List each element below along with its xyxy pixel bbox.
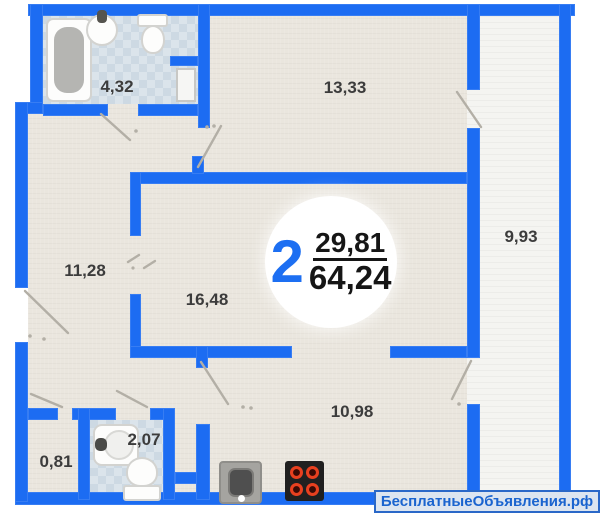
room-area-label-balcony: 9,93 [504, 227, 537, 247]
room-area-label-closet: 0,81 [39, 452, 72, 472]
wall [163, 408, 175, 500]
wall [192, 156, 204, 174]
kitchen-sink-drain [238, 495, 245, 502]
wc-sink-faucet [95, 438, 107, 451]
area-badge: 2 29,81 64,24 [265, 196, 397, 328]
stove-icon [285, 461, 324, 501]
vent-shaft [176, 68, 196, 102]
room-area-label-hall: 11,28 [64, 261, 106, 281]
wall [198, 4, 210, 128]
stove-burner-icon [306, 466, 319, 479]
total-area-value: 64,24 [309, 261, 392, 296]
wall [43, 104, 108, 116]
bath-toilet-bowl [141, 25, 165, 54]
wc-toilet-tank [123, 485, 161, 501]
floor-plan: 4,32 13,33 9,93 11,28 16,48 10,98 0,81 2… [0, 0, 600, 516]
wall [175, 472, 197, 484]
wall [467, 4, 480, 90]
wall [390, 346, 467, 358]
watermark-text: БесплатныеОбъявления.рф [381, 493, 593, 510]
outside-patch [0, 0, 30, 104]
wall [170, 56, 198, 66]
wall [467, 128, 480, 358]
area-fraction: 29,81 64,24 [309, 228, 392, 296]
wall [78, 408, 90, 500]
wall [28, 4, 575, 16]
room-area-label-bathroom: 4,32 [100, 77, 133, 97]
wall [196, 424, 210, 500]
stove-burner-icon [290, 466, 303, 479]
wall [138, 104, 198, 116]
rooms-count: 2 [271, 232, 304, 292]
wall [28, 408, 58, 420]
wall [15, 102, 28, 288]
room-area-label-wc: 2,07 [127, 430, 160, 450]
wall [130, 346, 292, 358]
bathtub-basin [54, 27, 84, 93]
watermark-banner: БесплатныеОбъявления.рф [374, 490, 600, 513]
balcony-floor [467, 4, 571, 503]
room-area-label-room-13: 13,33 [324, 78, 367, 98]
room-area-label-kitchen: 10,98 [331, 402, 374, 422]
stove-burner-icon [290, 483, 303, 496]
wc-toilet-icon [126, 457, 158, 487]
room-area-label-living: 16,48 [186, 290, 229, 310]
wall [130, 172, 467, 184]
wall [196, 346, 208, 368]
stove-burner-icon [306, 483, 319, 496]
kitchen-sink-basin [228, 468, 254, 497]
wall [467, 404, 480, 496]
wall [559, 4, 571, 505]
wall [130, 172, 141, 236]
bath-sink-faucet [97, 10, 107, 23]
wall [30, 4, 43, 114]
wall [15, 342, 28, 502]
living-area-value: 29,81 [313, 228, 387, 261]
